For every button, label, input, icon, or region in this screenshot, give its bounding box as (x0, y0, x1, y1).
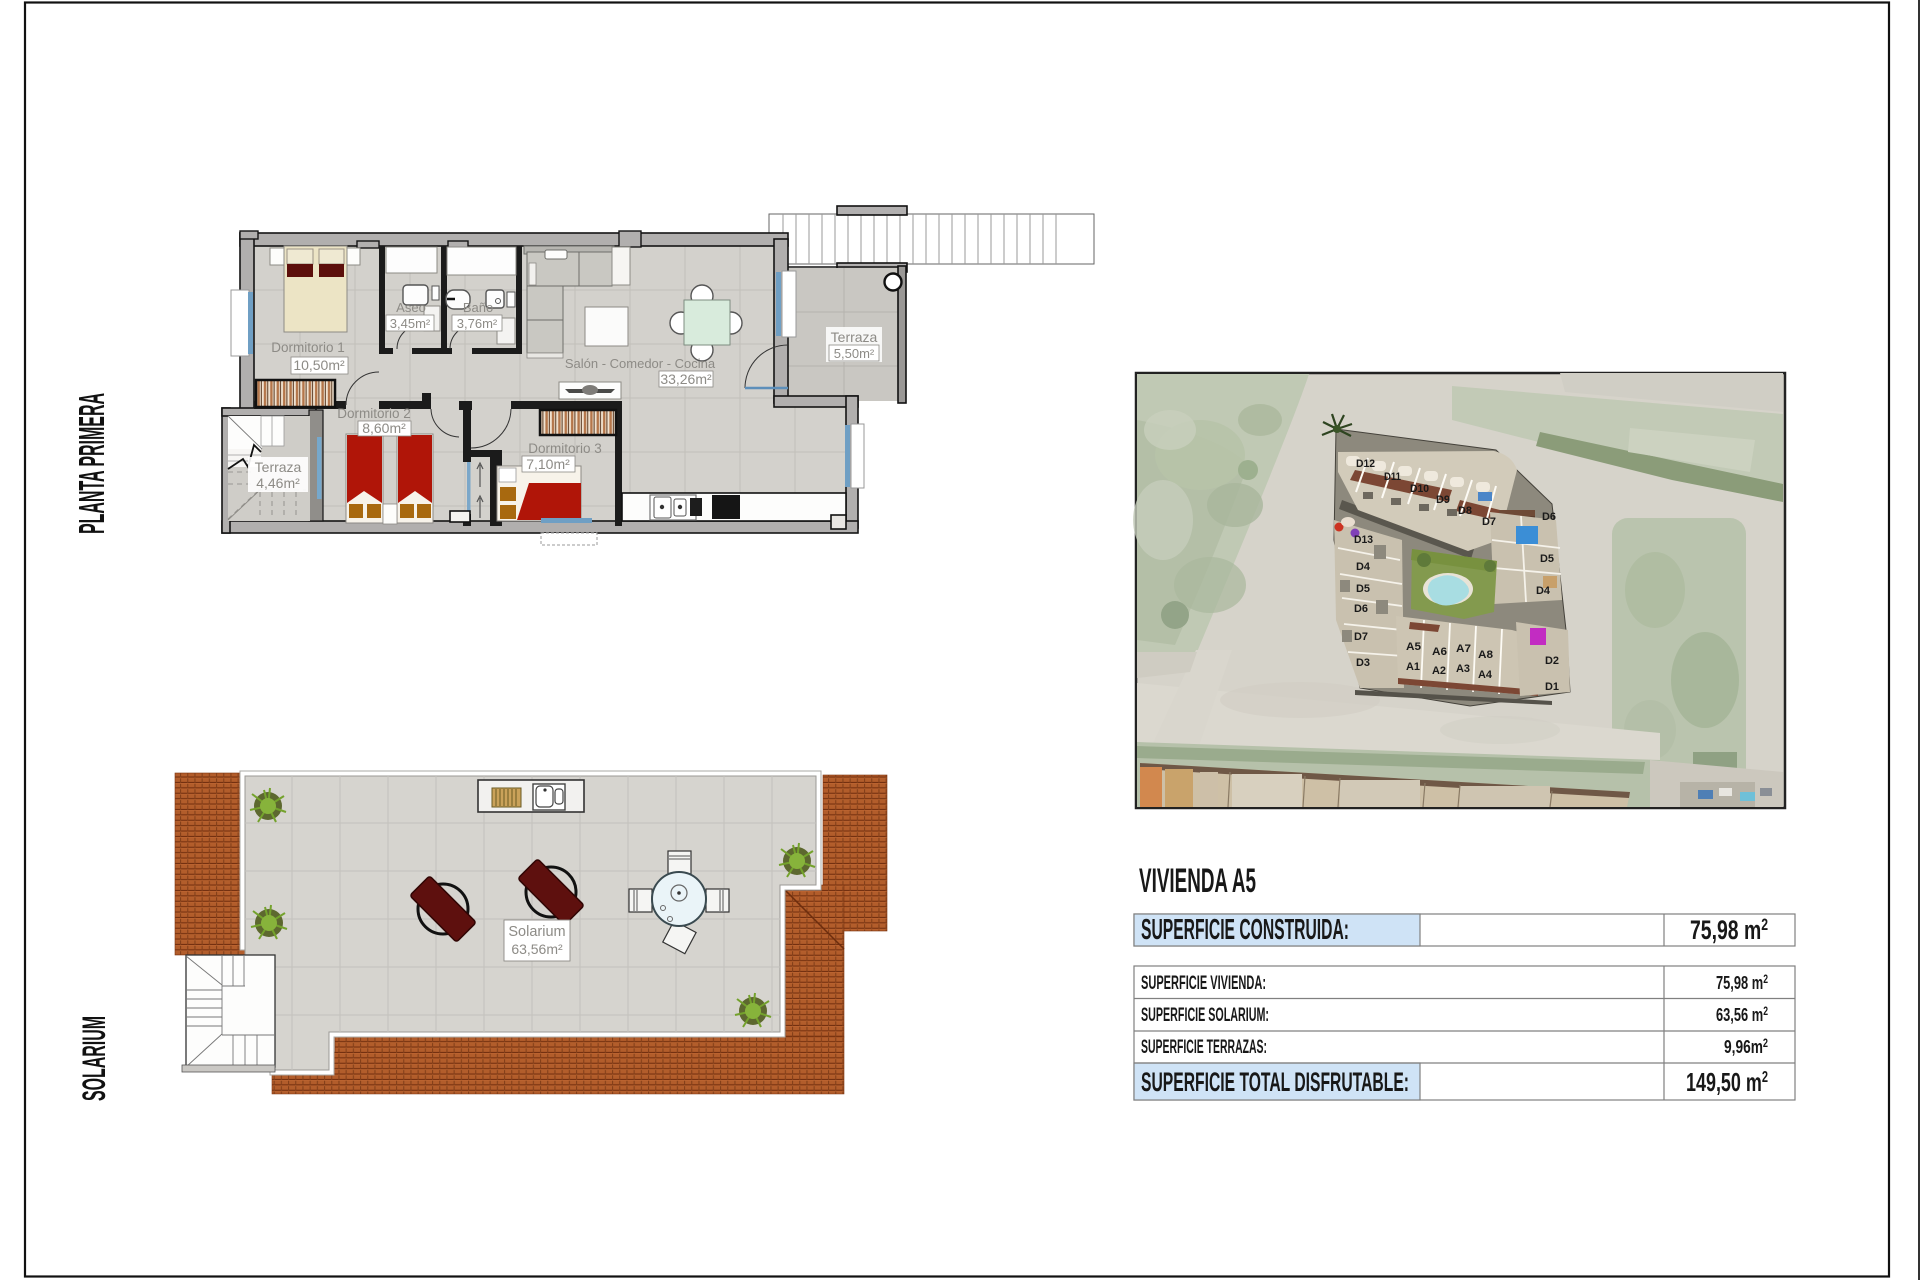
svg-text:A5: A5 (1406, 641, 1421, 653)
svg-text:D7: D7 (1482, 516, 1496, 528)
svg-text:5,50m²: 5,50m² (834, 346, 875, 361)
svg-text:SUPERFICIE CONSTRUIDA:: SUPERFICIE CONSTRUIDA: (1141, 914, 1349, 946)
svg-text:Aseo: Aseo (396, 300, 426, 315)
svg-text:63,56 m2: 63,56 m2 (1716, 1004, 1768, 1025)
svg-text:75,98 m2: 75,98 m2 (1716, 972, 1768, 993)
svg-text:D2: D2 (1545, 655, 1559, 667)
svg-text:A7: A7 (1456, 643, 1471, 655)
svg-text:A4: A4 (1478, 669, 1493, 681)
svg-text:D13: D13 (1354, 534, 1373, 546)
svg-text:149,50 m2: 149,50 m2 (1686, 1067, 1768, 1097)
svg-text:SOLARIUM: SOLARIUM (76, 1016, 112, 1101)
svg-text:D9: D9 (1436, 494, 1450, 506)
svg-text:PLANTA PRIMERA: PLANTA PRIMERA (71, 393, 112, 534)
svg-text:Dormitorio 1: Dormitorio 1 (271, 340, 345, 355)
svg-text:9,96m2: 9,96m2 (1724, 1036, 1768, 1057)
svg-text:4,46m²: 4,46m² (256, 475, 300, 491)
svg-text:10,50m²: 10,50m² (293, 357, 345, 373)
svg-text:D12: D12 (1356, 458, 1375, 470)
svg-text:D3: D3 (1356, 657, 1370, 669)
svg-text:Salón - Comedor - Cocina: Salón - Comedor - Cocina (565, 356, 716, 371)
svg-text:A8: A8 (1478, 649, 1493, 661)
svg-text:D4: D4 (1536, 585, 1551, 597)
svg-text:D5: D5 (1540, 553, 1554, 565)
svg-text:D5: D5 (1356, 583, 1370, 595)
svg-text:3,45m²: 3,45m² (390, 316, 431, 331)
svg-text:D6: D6 (1354, 603, 1368, 615)
svg-text:3,76m²: 3,76m² (457, 316, 498, 331)
svg-text:63,56m²: 63,56m² (511, 941, 563, 957)
svg-text:Baño: Baño (463, 300, 493, 315)
svg-text:A3: A3 (1456, 663, 1470, 675)
svg-text:VIVIENDA A5: VIVIENDA A5 (1139, 862, 1256, 900)
svg-text:75,98 m2: 75,98 m2 (1690, 915, 1768, 945)
svg-text:SUPERFICIE SOLARIUM:: SUPERFICIE SOLARIUM: (1141, 1005, 1269, 1026)
svg-text:Terraza: Terraza (255, 459, 302, 475)
svg-text:33,26m²: 33,26m² (660, 371, 712, 387)
svg-text:7,10m²: 7,10m² (526, 456, 570, 472)
svg-text:D10: D10 (1410, 483, 1429, 495)
svg-text:SUPERFICIE VIVIENDA:: SUPERFICIE VIVIENDA: (1141, 973, 1266, 994)
svg-text:Dormitorio 2: Dormitorio 2 (337, 406, 411, 421)
svg-text:Terraza: Terraza (831, 329, 878, 345)
svg-text:8,60m²: 8,60m² (362, 420, 406, 436)
svg-text:D8: D8 (1458, 505, 1472, 517)
svg-text:D6: D6 (1542, 511, 1556, 523)
svg-text:Solarium: Solarium (508, 924, 565, 940)
svg-text:A2: A2 (1432, 665, 1446, 677)
svg-text:A6: A6 (1432, 646, 1447, 658)
svg-text:SUPERFICIE TERRAZAS:: SUPERFICIE TERRAZAS: (1141, 1037, 1267, 1058)
svg-text:D1: D1 (1545, 681, 1559, 693)
svg-text:Dormitorio 3: Dormitorio 3 (528, 441, 602, 456)
svg-text:SUPERFICIE TOTAL DISFRUTABLE:: SUPERFICIE TOTAL DISFRUTABLE: (1141, 1067, 1409, 1097)
svg-text:D7: D7 (1354, 631, 1368, 643)
svg-text:A1: A1 (1406, 661, 1420, 673)
svg-text:D11: D11 (1384, 471, 1401, 483)
svg-text:D4: D4 (1356, 561, 1371, 573)
